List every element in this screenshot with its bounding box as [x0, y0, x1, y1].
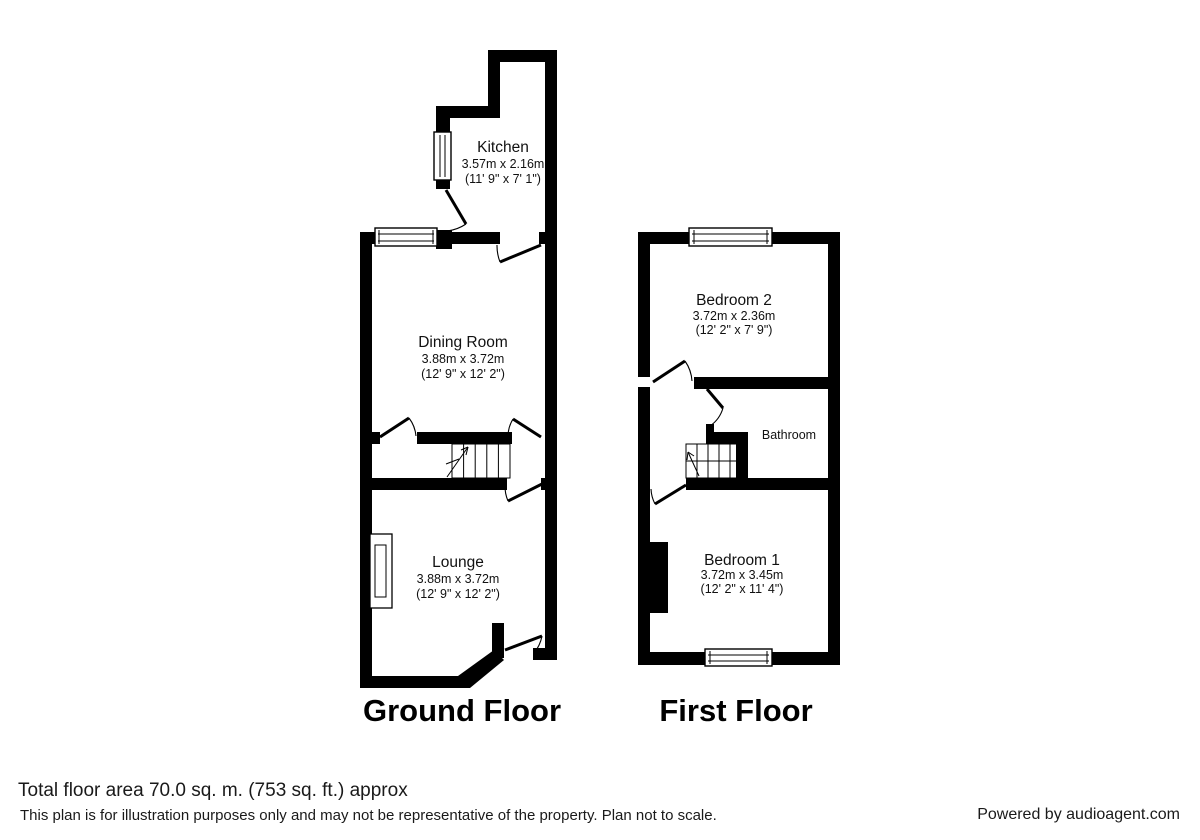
lounge-door	[505, 484, 542, 501]
dining-hall-right-door	[508, 419, 541, 437]
bedroom2-label: Bedroom 2	[696, 292, 772, 309]
window-frame	[375, 228, 437, 246]
first-floor-stairs	[686, 444, 740, 478]
wall-segment	[437, 232, 500, 244]
wall-segment	[360, 478, 507, 490]
bathroom-door	[707, 389, 723, 426]
door-leaf	[655, 485, 686, 504]
stairs-up-arrow	[446, 447, 468, 477]
dining-room-window	[375, 228, 437, 246]
door-leaf	[380, 418, 409, 437]
window-frame	[689, 228, 772, 246]
kitchen-size-imperial: (11' 9" x 7' 1")	[465, 172, 541, 186]
bedroom2-door	[653, 361, 692, 382]
door-arc	[497, 245, 500, 262]
kitchen-size-metric: 3.57m x 2.16m	[462, 157, 545, 171]
wall-segment	[638, 232, 650, 377]
wall-segment	[545, 50, 557, 660]
arrow-head	[687, 452, 688, 460]
lounge-fireplace	[370, 534, 392, 608]
kitchen-door	[446, 190, 466, 231]
wall-segment	[686, 478, 840, 490]
door-leaf	[707, 389, 723, 408]
bedroom2-window	[689, 228, 772, 246]
disclaimer-text: This plan is for illustration purposes o…	[20, 807, 717, 824]
door-leaf	[505, 636, 542, 650]
dining-room-size-imperial: (12' 9" x 12' 2")	[421, 367, 505, 381]
bedroom2-size-imperial: (12' 2" x 7' 9")	[696, 323, 773, 337]
wall-segment	[360, 676, 470, 688]
kitchen-dining-door	[497, 245, 541, 262]
wall-segment	[539, 232, 545, 244]
bathroom-label: Bathroom	[762, 428, 816, 442]
bedroom1-size-metric: 3.72m x 3.45m	[701, 568, 784, 582]
lounge-size-imperial: (12' 9" x 12' 2")	[416, 587, 500, 601]
first-floor-title: First Floor	[659, 693, 812, 728]
dining-room-label: Dining Room	[418, 334, 508, 351]
floorplan-page: Kitchen 3.57m x 2.16m (11' 9" x 7' 1") D…	[0, 0, 1200, 840]
entrance-door	[505, 636, 542, 653]
floorplan-canvas: Kitchen 3.57m x 2.16m (11' 9" x 7' 1") D…	[0, 0, 1200, 840]
bedroom1-window	[705, 649, 772, 666]
door-leaf	[653, 361, 685, 382]
window-frame	[705, 649, 772, 666]
ground-floor-title: Ground Floor	[363, 693, 561, 728]
powered-by-credit: Powered by audioagent.com	[977, 806, 1180, 823]
wall-segment	[417, 432, 512, 444]
door-arc	[710, 408, 723, 426]
wall-segment	[436, 106, 450, 133]
dining-room-size-metric: 3.88m x 3.72m	[422, 352, 505, 366]
bedroom2-size-metric: 3.72m x 2.36m	[693, 309, 776, 323]
kitchen-label: Kitchen	[477, 139, 529, 156]
door-leaf	[508, 484, 542, 501]
wall-segment	[492, 623, 504, 658]
footer: Total floor area 70.0 sq. m. (753 sq. ft…	[18, 780, 1180, 824]
bedroom1-label: Bedroom 1	[704, 552, 780, 569]
wall-segment	[736, 432, 748, 480]
door-arc	[447, 224, 466, 231]
first-floor-plan: Bedroom 2 3.72m x 2.36m (12' 2" x 7' 9")…	[638, 228, 840, 728]
window-frame	[434, 132, 451, 180]
door-arc	[651, 489, 655, 504]
door-leaf	[513, 419, 541, 437]
kitchen-window	[434, 132, 451, 180]
bedroom1-door	[651, 485, 686, 504]
door-leaf	[500, 245, 541, 262]
wall-segment	[694, 377, 840, 389]
lounge-label: Lounge	[432, 554, 484, 571]
total-floor-area-text: Total floor area 70.0 sq. m. (753 sq. ft…	[18, 780, 408, 801]
door-arc	[409, 418, 416, 436]
ground-floor-plan: Kitchen 3.57m x 2.16m (11' 9" x 7' 1") D…	[360, 50, 561, 728]
bedroom1-size-imperial: (12' 2" x 11' 4")	[701, 582, 784, 596]
lounge-size-metric: 3.88m x 3.72m	[417, 572, 500, 586]
wall-segment	[828, 232, 840, 665]
ground-floor-stairs	[446, 444, 510, 478]
door-leaf	[446, 190, 466, 224]
dining-hall-left-door	[380, 418, 416, 437]
wall-segment	[368, 432, 380, 444]
chimney-breast	[638, 542, 668, 613]
wall-segment	[360, 232, 372, 688]
stairs-outline	[452, 444, 510, 478]
wall-segment	[638, 387, 650, 665]
door-arc	[685, 361, 692, 381]
